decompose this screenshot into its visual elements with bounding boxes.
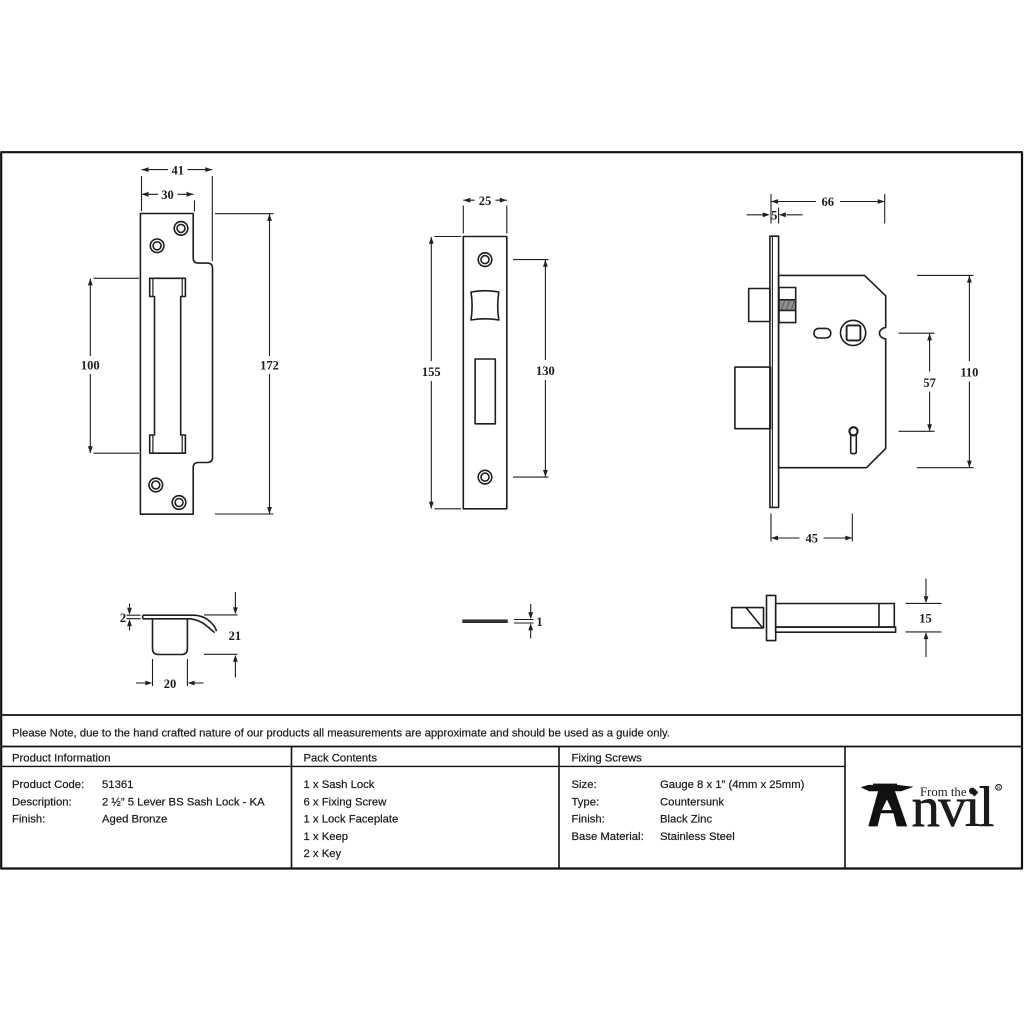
svg-text:130: 130 [536, 364, 555, 378]
svg-text:15: 15 [919, 611, 932, 625]
svg-text:6 x Fixing Screw: 6 x Fixing Screw [304, 796, 388, 808]
svg-text:57: 57 [923, 376, 936, 390]
svg-text:Stainless Steel: Stainless Steel [660, 831, 735, 843]
svg-text:Size:: Size: [572, 779, 597, 791]
svg-text:21: 21 [229, 629, 242, 643]
svg-text:Please Note, due to the hand c: Please Note, due to the hand crafted nat… [12, 727, 670, 739]
svg-text:Base Material:: Base Material: [572, 831, 644, 843]
svg-text:Countersunk: Countersunk [660, 796, 724, 808]
svg-text:Finish:: Finish: [572, 814, 605, 826]
svg-text:Product Information: Product Information [12, 753, 111, 765]
svg-text:100: 100 [81, 358, 100, 372]
svg-text:Fixing Screws: Fixing Screws [572, 753, 643, 765]
svg-text:Description:: Description: [12, 796, 72, 808]
svg-text:1 x Lock Faceplate: 1 x Lock Faceplate [304, 814, 399, 826]
svg-text:R: R [997, 785, 1001, 791]
svg-text:2 x Key: 2 x Key [304, 848, 342, 860]
svg-text:Finish:: Finish: [12, 814, 45, 826]
svg-text:Type:: Type: [572, 796, 600, 808]
svg-text:51361: 51361 [102, 779, 133, 791]
svg-text:Pack Contents: Pack Contents [304, 753, 378, 765]
svg-text:Black Zinc: Black Zinc [660, 814, 712, 826]
svg-text:Product Code:: Product Code: [12, 779, 84, 791]
svg-text:Gauge 8 x 1” (4mm x 25mm): Gauge 8 x 1” (4mm x 25mm) [660, 779, 805, 791]
svg-text:2: 2 [120, 611, 126, 625]
svg-text:2 ½” 5 Lever BS Sash Lock - KA: 2 ½” 5 Lever BS Sash Lock - KA [102, 796, 265, 808]
svg-text:20: 20 [164, 677, 177, 691]
svg-text:nvil: nvil [912, 776, 995, 839]
svg-text:45: 45 [805, 532, 818, 546]
svg-text:25: 25 [479, 194, 492, 208]
svg-text:1 x Sash Lock: 1 x Sash Lock [304, 779, 375, 791]
svg-text:41: 41 [171, 163, 184, 177]
svg-text:Aged Bronze: Aged Bronze [102, 814, 167, 826]
svg-text:66: 66 [822, 195, 835, 209]
svg-text:155: 155 [422, 365, 441, 379]
svg-text:1: 1 [536, 615, 542, 629]
svg-text:172: 172 [260, 358, 279, 372]
svg-text:1 x Keep: 1 x Keep [304, 831, 349, 843]
svg-text:5: 5 [771, 208, 777, 222]
svg-text:110: 110 [960, 366, 978, 380]
svg-text:30: 30 [161, 188, 174, 202]
